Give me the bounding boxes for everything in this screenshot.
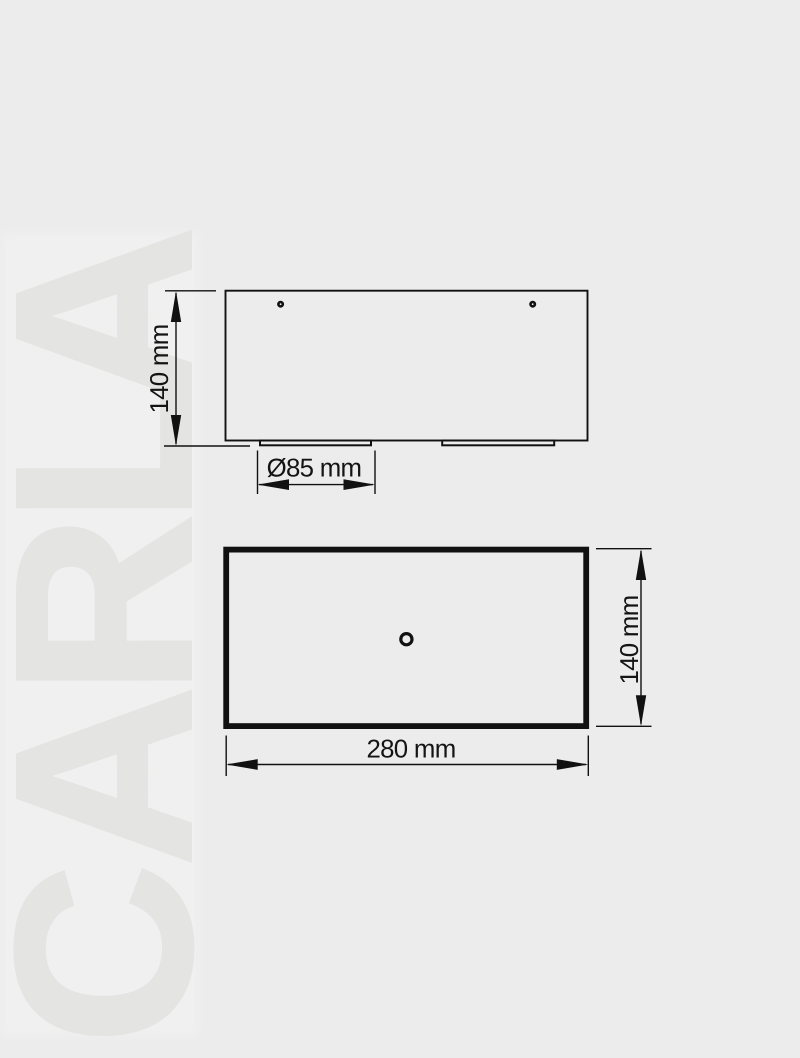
svg-text:C: C [0, 864, 243, 1045]
svg-text:140 mm: 140 mm [146, 324, 174, 413]
svg-text:R: R [0, 515, 243, 696]
svg-text:140 mm: 140 mm [616, 595, 644, 684]
svg-text:A: A [0, 226, 243, 407]
svg-text:280 mm: 280 mm [366, 735, 455, 763]
svg-text:Ø85 mm: Ø85 mm [267, 454, 362, 482]
svg-text:A: A [0, 686, 243, 867]
